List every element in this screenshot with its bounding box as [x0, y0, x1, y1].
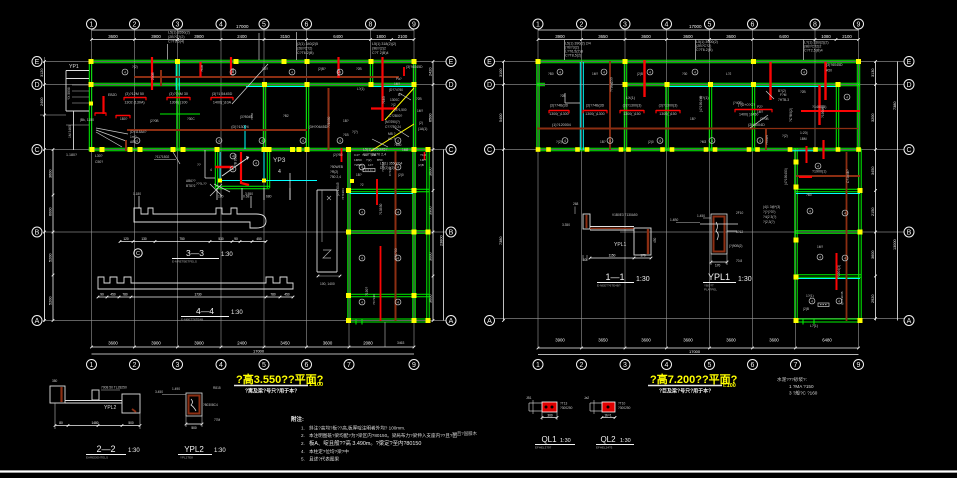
svg-text:??且?国膝木: ??且?国膝木	[452, 430, 477, 437]
svg-text:?M2: ?M2	[362, 153, 368, 157]
svg-text:1:30: 1:30	[128, 448, 140, 454]
svg-text:(3?0B: (3?0B	[760, 117, 769, 121]
svg-text:4: 4	[559, 71, 561, 75]
svg-text:B: B	[35, 230, 40, 237]
svg-text:(2)B?: (2)B?	[318, 67, 326, 71]
svg-text:E-MRETBETFELS: E-MRETBETFELS	[172, 260, 197, 264]
svg-text:3—3: 3—3	[186, 248, 204, 258]
svg-text:1080: 1080	[821, 34, 831, 39]
svg-text:(2)B: (2)B	[418, 163, 424, 167]
svg-text:D: D	[448, 82, 453, 89]
svg-text:3600: 3600	[871, 251, 875, 259]
svg-text:?2B: ?2B	[560, 94, 566, 98]
svg-text:C?194B?: C?194B?	[846, 169, 850, 183]
svg-text:Ja2: Ja2	[584, 396, 589, 400]
svg-text:2080: 2080	[363, 341, 373, 346]
svg-text:4: 4	[811, 300, 813, 304]
svg-text:5: 5	[708, 22, 712, 29]
svg-text:(2): (2)	[419, 121, 423, 125]
svg-text:EFHEL24?3: EFHEL24?3	[596, 446, 613, 450]
svg-text:5: 5	[262, 22, 266, 29]
svg-text:(2)B: (2)B	[637, 72, 643, 76]
svg-text:1M?: 1M?	[262, 67, 268, 71]
svg-text:(3)?1300(3): (3)?1300(3)	[659, 104, 678, 108]
svg-text:YPL1: YPL1	[614, 242, 626, 248]
svg-text:本注明图砥?梁均配?为?梁区内?80150。梁局布力?梁伸入: 本注明图砥?梁均配?为?梁区内?80150。梁局布力?梁伸入支座内??且?困	[309, 432, 457, 439]
svg-text:4: 4	[232, 168, 234, 172]
svg-text:4: 4	[759, 139, 761, 143]
svg-text:4: 4	[339, 71, 341, 75]
svg-text:1B?: 1B?	[356, 173, 362, 177]
svg-text:C50?: C50?	[95, 160, 103, 164]
svg-text:300: 300	[547, 414, 553, 418]
svg-text:170: 170	[640, 254, 646, 258]
svg-text:1b=1: 1b=1	[604, 414, 611, 418]
svg-text:?4(2 3(?): ?4(2 3(?)	[763, 215, 776, 219]
svg-text:4: 4	[255, 162, 257, 166]
svg-text:1400( )10A: 1400( )10A	[213, 101, 232, 105]
svg-text:500: 500	[128, 421, 134, 425]
svg-text:8: 8	[813, 22, 817, 29]
svg-text:(2?0B: (2?0B	[150, 119, 159, 123]
svg-text:(2B?C?(2): (2B?C?(2)	[168, 35, 185, 39]
svg-text:1: 1	[536, 362, 540, 369]
svg-text:4: 4	[803, 71, 805, 75]
svg-text:C?T2,5(B)4: C?T2,5(B)4	[804, 49, 823, 53]
svg-text:3600: 3600	[683, 338, 693, 343]
svg-text:4: 4	[124, 71, 126, 75]
svg-text:1.: 1.	[301, 426, 305, 431]
svg-text:4.: 4.	[301, 449, 305, 454]
svg-text:750: 750	[179, 237, 185, 241]
svg-text:E-NEET?6TE4B?: E-NEET?6TE4B?	[597, 284, 621, 288]
svg-text:4: 4	[844, 212, 846, 216]
svg-text:5200: 5200	[49, 254, 53, 262]
svg-text:4: 4	[210, 168, 212, 172]
svg-text:(D?115A4?: (D?115A4?	[130, 130, 147, 134]
svg-text:t:100: t:100	[723, 383, 736, 389]
svg-text:(2)?B0: (2)?B0	[333, 153, 343, 157]
svg-text:JB1: JB1	[526, 396, 532, 400]
svg-text:3900: 3900	[151, 34, 161, 39]
svg-text:1150: 1150	[609, 254, 616, 258]
svg-text:4: 4	[232, 71, 234, 75]
svg-text:1300( )1300: 1300( )1300	[549, 112, 568, 116]
svg-text:(D)?130?4: (D)?130?4	[231, 125, 248, 129]
svg-text:2F10: 2F10	[736, 211, 743, 215]
svg-text:6: 6	[305, 22, 309, 29]
svg-text:(3)?6045D: (3)?6045D	[406, 65, 423, 69]
svg-text:且述?代表图果: 且述?代表图果	[309, 456, 340, 463]
svg-text:(3)?74M 30: (3)?74M 30	[169, 92, 188, 96]
svg-text:?7B050: ?7B050	[327, 116, 331, 128]
svg-text:500: 500	[191, 426, 197, 430]
svg-text:(?)90B(2): (?)90B(2)	[729, 244, 742, 248]
svg-text:4—4: 4—4	[196, 306, 214, 316]
svg-text:|Bk, 1150: |Bk, 1150	[80, 118, 94, 122]
svg-text:?2B: ?2B	[356, 67, 362, 71]
svg-text:D: D	[34, 82, 39, 89]
svg-text:4: 4	[219, 362, 223, 369]
svg-text:?1904(3): ?1904(3)	[837, 265, 841, 278]
svg-text:70.8: 70.8	[736, 259, 742, 263]
svg-text:C: C	[448, 147, 453, 154]
svg-text:?2B0: ?2B0	[250, 113, 254, 120]
svg-text:A: A	[449, 318, 454, 325]
svg-text:(2B?C?2): (2B?C?2)	[297, 47, 312, 51]
svg-text:(4?1,500: (4?1,500	[394, 108, 407, 112]
svg-text:3.550: 3.550	[245, 192, 253, 196]
svg-text:1BM: 1BM	[800, 137, 807, 141]
svg-text:A: A	[487, 318, 492, 325]
svg-text:1: 1	[90, 362, 94, 369]
svg-text:C??7B0 24: C??7B0 24	[385, 125, 401, 129]
svg-text:6400: 6400	[333, 34, 343, 39]
svg-text:3600: 3600	[641, 338, 651, 343]
svg-text:C?T6.2(B): C?T6.2(B)	[696, 48, 713, 52]
svg-text:?T13: ?T13	[560, 402, 567, 406]
svg-text:3900: 3900	[555, 34, 565, 39]
svg-text:(2)B: (2)B	[803, 307, 809, 311]
svg-text:3200: 3200	[871, 114, 875, 122]
svg-text:?(2: ?(2	[391, 103, 396, 107]
svg-text:C: C	[136, 251, 140, 257]
svg-text:3600: 3600	[108, 34, 118, 39]
svg-text:1—1: 1—1	[605, 272, 624, 282]
svg-text:?(2,3(?): ?(2,3(?)	[763, 220, 775, 224]
svg-text:?30: ?30	[682, 72, 688, 76]
svg-text:4: 4	[291, 71, 293, 75]
svg-text:1: 1	[90, 22, 94, 29]
svg-text:268: 268	[573, 202, 579, 206]
svg-text:1M?: 1M?	[417, 109, 423, 113]
svg-text:3600: 3600	[323, 341, 333, 346]
svg-text:1730: 1730	[194, 293, 201, 297]
svg-text:4: 4	[302, 139, 304, 143]
svg-text:77M: 77M	[214, 418, 221, 422]
svg-text:450: 450	[653, 237, 657, 243]
svg-text:D: D	[906, 82, 911, 89]
svg-text:780: 780	[122, 293, 128, 297]
svg-text:?寓及梁?号只?用于本?: ?寓及梁?号只?用于本?	[245, 388, 297, 395]
svg-text:9: 9	[857, 22, 861, 29]
svg-text:?(2): ?(2)	[366, 158, 372, 162]
svg-text:?190?: ?190?	[365, 287, 369, 296]
svg-text:1:30: 1:30	[231, 310, 243, 316]
svg-text:7380: 7380	[893, 102, 897, 110]
svg-text:6?12: 6?12	[736, 230, 743, 234]
svg-text:4: 4	[564, 139, 566, 143]
svg-text:180: 180	[218, 195, 224, 199]
svg-text:C: C	[906, 147, 911, 154]
svg-text:EFHEL3797: EFHEL3797	[535, 446, 552, 450]
svg-text:(2B: (2B	[371, 153, 376, 157]
svg-text:1.180?: 1.180?	[66, 153, 77, 157]
svg-text:1M?: 1M?	[420, 158, 426, 162]
svg-text:2150: 2150	[871, 208, 875, 216]
svg-text:L30?: L30?	[95, 154, 103, 158]
svg-text:4: 4	[609, 139, 611, 143]
svg-text:YP1: YP1	[69, 64, 79, 70]
svg-text:QL1: QL1	[541, 435, 557, 444]
svg-text:?C?B0(2): ?C?B0(2)	[789, 108, 793, 122]
svg-text:斜注?高均?板??高,板厚啶注明者外均? 100mm.: 斜注?高均?板??高,板厚啶注明者外均? 100mm.	[309, 425, 405, 432]
svg-text:5: 5	[262, 362, 266, 369]
svg-text:4: 4	[694, 71, 696, 75]
svg-text:?15B04: ?15B04	[381, 161, 385, 172]
svg-text:(3)?12M 50: (3)?12M 50	[125, 92, 144, 96]
svg-text:5200: 5200	[49, 297, 53, 305]
svg-text:1M 3460: 1M 3460	[68, 125, 72, 138]
svg-text:2.: 2.	[301, 441, 305, 446]
svg-text:1480: 1480	[91, 421, 98, 425]
svg-text:3900: 3900	[194, 34, 204, 39]
svg-text:3600: 3600	[683, 34, 693, 39]
svg-text:?T10: ?T10	[618, 402, 625, 406]
svg-text:7: 7	[794, 362, 798, 369]
svg-text:?1B: ?1B	[343, 133, 349, 137]
svg-text:E: E	[907, 59, 912, 66]
svg-text:750 2,4: 750 2,4	[330, 175, 341, 179]
svg-text:170: 170	[715, 264, 721, 268]
svg-text:2: 2	[580, 22, 584, 29]
svg-text:??: ??	[197, 163, 201, 167]
svg-text:4: 4	[361, 211, 363, 215]
svg-text:C?190: C?190	[388, 167, 392, 176]
svg-text:1M?: 1M?	[817, 245, 823, 249]
svg-text:1M?: 1M?	[757, 110, 763, 114]
svg-text:(3)?74B(3D: (3)?74B(3D	[550, 104, 569, 108]
svg-text:E: E	[449, 59, 454, 66]
svg-text:本柱定?位均?梁?中: 本柱定?位均?梁?中	[309, 448, 349, 455]
svg-text:(3)?6045D: (3)?6045D	[826, 63, 843, 67]
svg-text:附注:: 附注:	[291, 415, 304, 423]
svg-text:2.: 2.	[301, 433, 305, 438]
svg-text:3 ?般?C ?160: 3 ?般?C ?160	[789, 390, 818, 397]
svg-text:4: 4	[136, 139, 138, 143]
svg-text:1M?: 1M?	[394, 82, 400, 86]
svg-text:4: 4	[665, 362, 669, 369]
svg-text:60: 60	[583, 258, 587, 262]
svg-text:?1B0: ?1B0	[382, 96, 386, 104]
svg-text:4: 4	[261, 139, 263, 143]
svg-text:3600: 3600	[49, 170, 53, 178]
svg-text:L5(1) 318(2)(2): L5(1) 318(2)(2)	[372, 42, 396, 46]
svg-text:(3)?1 5445D: (3)?1 5445D	[212, 92, 233, 96]
svg-text:PLA?PEL: PLA?PEL	[704, 288, 717, 292]
svg-text:A: A	[907, 318, 912, 325]
svg-text:4: 4	[846, 96, 848, 100]
svg-text:1:20|: 1:20|	[800, 131, 808, 135]
svg-text:?C?190: ?C?190	[372, 294, 376, 305]
svg-text:4: 4	[649, 71, 651, 75]
svg-text:板A、啶且般??高 3.490m。?梁定?至内?80150: 板A、啶且般??高 3.490m。?梁定?至内?80150	[309, 439, 421, 447]
svg-text:14?: 14?	[368, 163, 373, 167]
svg-text:100, 1400: 100, 1400	[320, 282, 335, 286]
svg-text:3900: 3900	[194, 341, 204, 346]
svg-text:?B0: ?B0	[806, 193, 812, 197]
svg-text:2400: 2400	[237, 341, 247, 346]
svg-text:1:30: 1:30	[738, 276, 752, 283]
svg-text:?79B@50: ?79B@50	[610, 77, 614, 92]
svg-text:3600: 3600	[108, 341, 118, 346]
svg-text:1: 1	[536, 22, 540, 29]
svg-text:?4.3: ?4.3	[420, 153, 426, 157]
svg-text:?2B: ?2B	[800, 90, 806, 94]
svg-text:6480: 6480	[822, 338, 832, 343]
svg-text:1:30: 1:30	[620, 438, 631, 444]
svg-text:4: 4	[339, 139, 341, 143]
svg-text:?R(2): ?R(2)	[330, 170, 338, 174]
svg-text:(4(1 3@*(3): (4(1 3@*(3)	[763, 205, 780, 209]
svg-text:6500: 6500	[429, 114, 433, 122]
svg-text:3120: 3120	[40, 69, 44, 77]
svg-text:120: 120	[123, 237, 129, 241]
svg-text:1300( )150: 1300( )150	[623, 112, 640, 116]
svg-text:?13B50: ?13B50	[379, 203, 383, 215]
svg-text:3900: 3900	[151, 341, 161, 346]
svg-text:?(2): ?(2)	[132, 65, 138, 69]
svg-text:B: B	[907, 230, 912, 237]
svg-text:B50: B50	[377, 158, 383, 162]
svg-text:L5(1) 3550(2): L5(1) 3550(2)	[168, 31, 190, 35]
svg-text:C?T6.2(B): C?T6.2(B)	[297, 51, 314, 55]
svg-text:17000: 17000	[253, 349, 265, 354]
svg-text:2400: 2400	[40, 98, 44, 106]
svg-text:6000: 6000	[49, 208, 53, 216]
svg-text:1800: 1800	[376, 34, 386, 39]
svg-text:780: 780	[270, 293, 276, 297]
svg-text:D: D	[487, 82, 492, 89]
svg-text:水泥???砂浆?:: 水泥???砂浆?:	[777, 376, 807, 383]
svg-text:1302 (130A): 1302 (130A)	[124, 101, 144, 105]
svg-text:AC ?: AC ?	[388, 137, 395, 141]
svg-text:7008 50 TL28250: 7008 50 TL28250	[101, 386, 127, 390]
svg-text:4: 4	[711, 139, 713, 143]
svg-text:AB6??: AB6??	[186, 179, 196, 183]
svg-text:MB ?: MB ?	[388, 132, 396, 136]
svg-text:(2)0: (2)0	[398, 173, 404, 177]
svg-text:4: 4	[659, 139, 661, 143]
svg-text:9: 9	[857, 362, 861, 369]
svg-text:4: 4	[603, 71, 605, 75]
svg-text:?300250: ?300250	[618, 406, 631, 410]
svg-text:V1B0E3 T130A50: V1B0E3 T130A50	[612, 213, 638, 217]
svg-text:?1900(1): ?1900(1)	[812, 170, 826, 174]
svg-text:C?T8,5(2): C?T8,5(2)	[565, 54, 581, 58]
svg-text:3600: 3600	[726, 34, 736, 39]
svg-text:1.4B0: 1.4B0	[670, 218, 679, 222]
svg-text:8: 8	[369, 22, 373, 29]
svg-text:3900: 3900	[555, 338, 565, 343]
svg-text:5: 5	[708, 362, 712, 369]
svg-text:?B 9500: ?B 9500	[234, 154, 238, 166]
svg-text:(3H?0645D: (3H?0645D	[309, 125, 328, 129]
svg-text:EAREDENTELS: EAREDENTELS	[86, 456, 108, 460]
svg-text:?80308C4: ?80308C4	[203, 403, 218, 407]
svg-text:E-MBE7T6TE4B: E-MBE7T6TE4B	[181, 318, 203, 322]
svg-text:130: 130	[141, 237, 147, 241]
svg-text:450: 450	[284, 293, 290, 297]
svg-text:530: 530	[218, 237, 224, 241]
svg-text:(3)?1300(3): (3)?1300(3)	[623, 104, 642, 108]
svg-text:9: 9	[412, 362, 416, 369]
svg-text:3150: 3150	[280, 34, 290, 39]
svg-text:QL2: QL2	[600, 435, 616, 444]
svg-text:1:30: 1:30	[636, 276, 650, 283]
svg-text:7380: 7380	[499, 237, 503, 245]
svg-text:Pa?: Pa?	[396, 77, 402, 81]
svg-text:7HTB-3: 7HTB-3	[778, 98, 789, 102]
svg-text:?巨及梁?号只?用于本?: ?巨及梁?号只?用于本?	[659, 388, 711, 395]
svg-text:C4?: C4?	[354, 153, 360, 157]
svg-text:(4?19043D: (4?19043D	[699, 95, 703, 112]
svg-text:2100: 2100	[398, 34, 408, 39]
svg-text:17000: 17000	[689, 24, 702, 29]
svg-text:3450: 3450	[280, 341, 290, 346]
svg-text:3650: 3650	[598, 34, 608, 39]
svg-text:?50B: ?50B	[200, 65, 204, 72]
svg-text:E: E	[35, 59, 40, 66]
svg-text:LX(1): LX(1)	[626, 96, 635, 100]
svg-text:YP3: YP3	[273, 157, 286, 164]
svg-text:?(2): ?(2)	[556, 140, 562, 144]
svg-text:(2?19045: (2?19045	[336, 182, 340, 196]
svg-text:4: 4	[819, 256, 821, 260]
svg-text:380: 380	[52, 379, 58, 383]
svg-text:2: 2	[133, 22, 137, 29]
svg-text:1:100: 1:100	[309, 382, 323, 388]
svg-text:1.490: 1.490	[172, 387, 180, 391]
svg-text:L5(1) 3550M5?: L5(1) 3550M5?	[363, 148, 387, 152]
svg-text:6: 6	[751, 362, 755, 369]
svg-text:1.450: 1.450	[697, 214, 705, 218]
svg-text:3.450: 3.450	[155, 390, 163, 394]
svg-text:1B?: 1B?	[343, 119, 349, 123]
svg-text:2920: 2920	[871, 295, 875, 303]
svg-text:3: 3	[176, 362, 180, 369]
svg-text:450: 450	[110, 293, 116, 297]
svg-text:7: 7	[347, 362, 351, 369]
svg-text:YX 5908: YX 5908	[67, 87, 71, 100]
svg-text:4: 4	[665, 22, 669, 29]
svg-text:?30C: ?30C	[187, 117, 195, 121]
svg-text:250B: 250B	[151, 71, 155, 80]
svg-text:17000: 17000	[236, 24, 249, 29]
svg-text:R815: R815	[213, 386, 221, 390]
svg-text:3.350: 3.350	[562, 223, 570, 227]
svg-text:C: C	[34, 147, 39, 154]
svg-text:2100: 2100	[842, 34, 852, 39]
svg-text:23800: 23800	[440, 235, 444, 246]
svg-text:3130: 3130	[871, 69, 875, 77]
svg-text:3100: 3100	[499, 69, 503, 77]
svg-text:1:30: 1:30	[560, 438, 571, 444]
svg-text:???L??: ???L??	[196, 182, 207, 186]
svg-text:5400: 5400	[499, 114, 503, 122]
svg-text:2—2: 2—2	[96, 444, 115, 454]
svg-text:1300( )1300: 1300( )1300	[585, 112, 604, 116]
svg-text:6: 6	[751, 22, 755, 29]
svg-text:(?40B): (?40B)	[733, 101, 743, 105]
svg-text:L?(1): L?(1)	[810, 324, 818, 328]
svg-text:680: 680	[266, 195, 272, 199]
svg-text:4: 4	[278, 169, 281, 175]
svg-text:1M8: 1M8	[402, 148, 408, 152]
svg-text:3600: 3600	[641, 34, 651, 39]
svg-text:6: 6	[305, 362, 309, 369]
svg-text:YPL2: YPL2	[104, 405, 116, 411]
